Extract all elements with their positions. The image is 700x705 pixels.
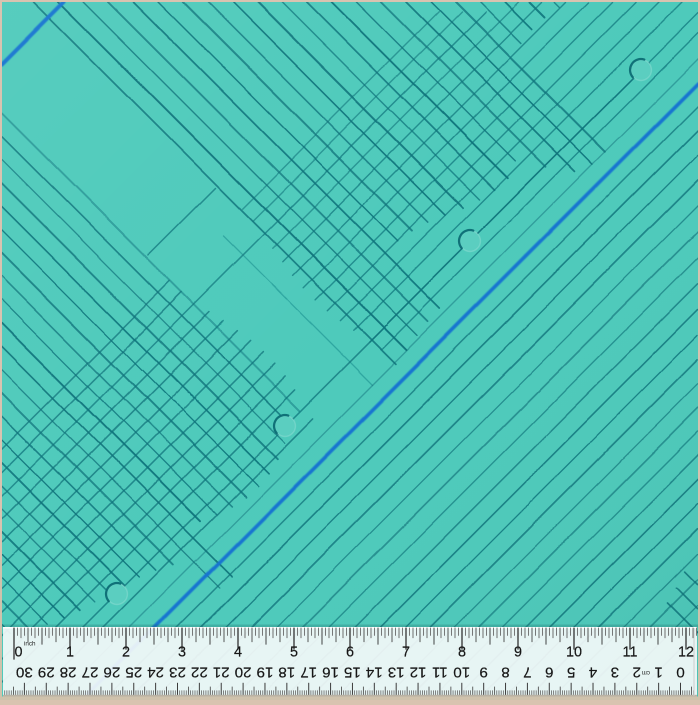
svg-text:29: 29 xyxy=(38,664,55,681)
svg-text:4: 4 xyxy=(234,645,242,661)
svg-text:2: 2 xyxy=(122,645,130,661)
svg-text:11: 11 xyxy=(623,645,638,661)
svg-text:2: 2 xyxy=(633,664,641,681)
svg-text:5: 5 xyxy=(290,645,298,661)
svg-text:19: 19 xyxy=(257,664,274,681)
svg-text:11: 11 xyxy=(432,664,448,681)
svg-text:25: 25 xyxy=(125,664,142,681)
svg-text:15: 15 xyxy=(344,664,361,681)
svg-text:10: 10 xyxy=(566,645,582,661)
svg-text:24: 24 xyxy=(147,664,164,681)
svg-text:6: 6 xyxy=(346,645,354,661)
svg-text:28: 28 xyxy=(60,664,77,681)
svg-text:12: 12 xyxy=(678,645,694,661)
svg-text:0: 0 xyxy=(676,664,684,681)
svg-text:6: 6 xyxy=(545,664,553,681)
svg-text:1: 1 xyxy=(654,664,662,681)
svg-text:16: 16 xyxy=(322,664,339,681)
svg-text:cm: cm xyxy=(642,669,650,676)
svg-text:21: 21 xyxy=(213,664,230,681)
svg-text:4: 4 xyxy=(589,664,597,681)
svg-text:18: 18 xyxy=(278,664,295,681)
svg-text:30: 30 xyxy=(16,664,33,681)
svg-text:7: 7 xyxy=(523,664,531,681)
svg-text:9: 9 xyxy=(479,664,487,681)
svg-text:22: 22 xyxy=(191,664,208,681)
svg-text:3: 3 xyxy=(178,645,186,661)
svg-text:23: 23 xyxy=(169,664,186,681)
svg-text:9: 9 xyxy=(514,645,522,661)
svg-text:7: 7 xyxy=(402,645,410,661)
svg-text:0: 0 xyxy=(14,645,22,661)
svg-text:8: 8 xyxy=(501,664,509,681)
svg-text:10: 10 xyxy=(453,664,470,681)
svg-text:8: 8 xyxy=(458,645,466,661)
svg-text:12: 12 xyxy=(410,664,427,681)
svg-text:14: 14 xyxy=(366,664,383,681)
svg-text:17: 17 xyxy=(300,664,317,681)
svg-text:26: 26 xyxy=(103,664,120,681)
svg-text:13: 13 xyxy=(388,664,405,681)
svg-text:27: 27 xyxy=(82,664,99,681)
svg-text:5: 5 xyxy=(567,664,575,681)
svg-text:inch: inch xyxy=(24,641,36,648)
svg-text:3: 3 xyxy=(611,664,619,681)
svg-text:20: 20 xyxy=(235,664,252,681)
svg-text:1: 1 xyxy=(66,645,74,661)
